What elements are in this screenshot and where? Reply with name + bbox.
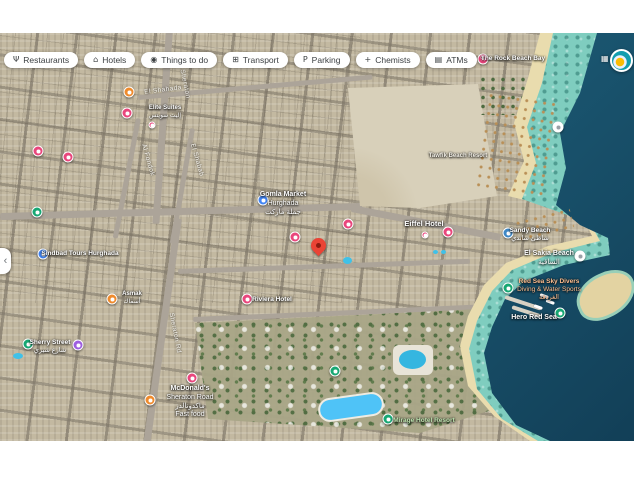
chip-atms[interactable]: ▤ATMs [426, 52, 477, 68]
poi-label-line: Sherry Street [30, 339, 71, 347]
poi-label-line: Sheraton Road [166, 394, 213, 403]
hotel-marker[interactable] [122, 108, 133, 119]
chip-restaurants[interactable]: ΨRestaurants [4, 52, 78, 68]
chip-label: Hotels [102, 55, 126, 65]
chip-label: Transport [243, 55, 279, 65]
poi-label-line: Mirage Hotel Resort [393, 417, 454, 425]
chip-transport[interactable]: ⊞Transport [223, 52, 288, 68]
pool [433, 250, 438, 254]
chip-chemists[interactable]: +Chemists [356, 52, 420, 68]
pin-core [315, 242, 322, 249]
hotel-marker[interactable] [290, 232, 301, 243]
poi-label-line: الغردقة [517, 294, 581, 302]
chevron-left-icon: ‹ [4, 255, 8, 267]
poi-label[interactable]: Tawfik Beach Resort [429, 153, 488, 161]
attraction-marker[interactable] [73, 340, 84, 351]
poi-label-line: McDonald's [166, 385, 213, 394]
poi-label-line: شاطئ ساندي [510, 235, 551, 243]
poi-label-line: Elite Suites [149, 105, 181, 113]
chip-parking[interactable]: PParking [294, 52, 350, 68]
resort-marker[interactable] [330, 366, 341, 377]
pool [441, 250, 446, 254]
poi-label[interactable]: Eiffel Hotel [404, 219, 443, 228]
poi-label-line: الساقية [524, 259, 574, 268]
hotel-marker[interactable] [63, 152, 74, 163]
pool [13, 353, 23, 359]
hotel-marker[interactable] [343, 219, 354, 230]
camera-icon: ◉ [150, 56, 157, 64]
chemists-icon: + [365, 56, 372, 64]
mini-pin[interactable] [149, 122, 156, 129]
pool [399, 350, 426, 369]
restaurant-marker[interactable] [124, 87, 135, 98]
atm-icon: ▤ [435, 56, 443, 64]
poi-label-line: Eiffel Hotel [404, 219, 443, 228]
poi-label-line: Red Sea Sky Divers [517, 278, 581, 286]
poi-label-line: Riviera Hotel [252, 296, 292, 304]
poi-label[interactable]: Hero Red Sea [511, 314, 557, 323]
parking-icon: P [303, 56, 308, 64]
resort-marker[interactable] [383, 414, 394, 425]
poi-label[interactable]: Riviera Hotel [252, 296, 292, 304]
grid-icon: ▦ [601, 54, 609, 63]
poi-label-line: جملة ماركت [260, 209, 306, 218]
poi-label-line: Sindbad Tours Hurghada [41, 250, 118, 258]
photo-sphere-thumbnail[interactable] [610, 49, 633, 72]
collapse-panel-button[interactable]: ‹ [0, 248, 11, 274]
poi-label[interactable]: Mirage Hotel Resort [393, 417, 454, 425]
chip-hotels[interactable]: ⌂Hotels [84, 52, 135, 68]
poi-label-line: Hero Red Sea [511, 314, 557, 323]
google-maps-screenshot: % SheratonEl ShahadaAl FondokEl ShababSh… [0, 0, 640, 480]
poi-label-line: El Sakia Beach [524, 250, 574, 259]
chip-label: Chemists [375, 55, 410, 65]
restaurant-marker[interactable] [145, 395, 156, 406]
poi-label-line: ماكدونالدز [166, 403, 213, 412]
hotel-marker[interactable] [242, 294, 253, 305]
poi-label[interactable]: Elite Suitesإليت سويتس [149, 105, 181, 120]
transport-icon: ⊞ [232, 56, 239, 64]
poi-label-line: Tawfik Beach Resort [429, 153, 488, 161]
poi-label-line: Fast food [166, 411, 213, 420]
chip-label: Things to do [161, 55, 208, 65]
poi-label[interactable]: El Sakia Beachالساقية [524, 250, 574, 268]
poi-label-line: The Rock Beach Bay [481, 55, 545, 63]
hotel-marker[interactable] [33, 146, 44, 157]
poi-label[interactable]: Sindbad Tours Hurghada [41, 250, 118, 258]
mini-pin[interactable] [422, 232, 429, 239]
poi-label-line: أسماك [122, 299, 142, 307]
chip-label: Restaurants [23, 55, 69, 65]
chip-things-to-do[interactable]: ◉Things to do [141, 52, 217, 68]
pool [343, 257, 352, 264]
poi-label-line: Sandy Beach [510, 227, 551, 235]
chip-label: ATMs [446, 55, 468, 65]
restaurants-icon: Ψ [13, 56, 19, 64]
boat-tour-marker[interactable] [503, 283, 514, 294]
hotel-marker[interactable] [187, 373, 198, 384]
hotel-marker[interactable] [443, 227, 454, 238]
poi-label[interactable]: Sherry Streetشارع شيري [30, 339, 71, 355]
restaurant-marker[interactable] [107, 294, 118, 305]
beach-access-marker[interactable] [553, 122, 564, 133]
chip-label: Parking [312, 55, 341, 65]
poi-label[interactable]: McDonald'sSheraton RoadماكدونالدزFast fo… [166, 385, 213, 420]
map-canvas[interactable]: % SheratonEl ShahadaAl FondokEl ShababSh… [0, 33, 634, 441]
poi-label-line: إليت سويتس [149, 113, 181, 121]
poi-label[interactable]: Asmakأسماك [122, 291, 142, 306]
poi-label-line: شارع شيري [30, 347, 71, 355]
park-marker[interactable] [32, 207, 43, 218]
poi-label[interactable]: The Rock Beach Bay [481, 55, 545, 63]
poi-label[interactable]: Gomla MarketHurghadaجملة ماركت [260, 191, 306, 217]
category-chip-bar: ΨRestaurants⌂Hotels◉Things to do⊞Transpo… [4, 52, 477, 68]
poi-label-line: Hurghada [260, 200, 306, 209]
poi-label-line: Gomla Market [260, 191, 306, 200]
beach-access-marker[interactable] [575, 251, 586, 262]
hotels-icon: ⌂ [93, 56, 98, 64]
beach-umbrellas [473, 91, 556, 200]
poi-label-line: Asmak [122, 291, 142, 299]
poi-label[interactable]: Sandy Beachشاطئ ساندي [510, 227, 551, 243]
poi-label[interactable]: Red Sea Sky DiversDiving & Water Sportsا… [517, 278, 581, 302]
